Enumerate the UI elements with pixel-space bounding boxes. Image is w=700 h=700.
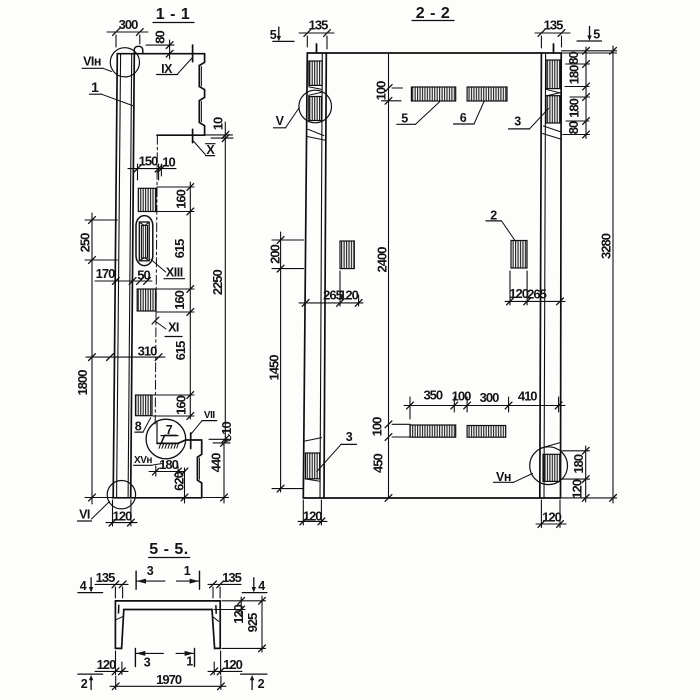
svg-text:4: 4 (258, 579, 265, 593)
svg-text:5: 5 (270, 28, 277, 42)
svg-text:3: 3 (346, 430, 353, 444)
svg-text:2400: 2400 (375, 247, 390, 273)
svg-text:120: 120 (542, 510, 561, 525)
svg-text:5 - 5.: 5 - 5. (149, 541, 188, 558)
svg-text:1970: 1970 (156, 672, 182, 687)
svg-text:180: 180 (567, 65, 582, 84)
svg-text:250: 250 (78, 233, 93, 252)
svg-text:170: 170 (96, 266, 115, 281)
svg-text:925: 925 (245, 613, 260, 632)
svg-text:100: 100 (374, 81, 389, 100)
svg-text:5: 5 (401, 112, 408, 126)
svg-text:120: 120 (97, 657, 116, 672)
svg-text:6: 6 (460, 111, 467, 125)
svg-text:XI: XI (168, 321, 179, 335)
svg-text:300: 300 (480, 390, 499, 405)
svg-text:3: 3 (144, 656, 151, 670)
svg-text:2250: 2250 (210, 269, 225, 295)
svg-text:265: 265 (527, 287, 546, 302)
svg-text:120: 120 (231, 604, 246, 623)
svg-text:VI: VI (79, 508, 90, 522)
svg-text:5: 5 (593, 28, 600, 42)
svg-text:440: 440 (209, 453, 224, 472)
svg-text:3280: 3280 (599, 233, 614, 259)
svg-text:3: 3 (147, 564, 154, 578)
svg-text:80: 80 (566, 121, 581, 134)
svg-text:XIII: XIII (166, 266, 183, 280)
svg-text:2: 2 (81, 677, 88, 691)
svg-text:135: 135 (222, 570, 241, 585)
svg-text:10: 10 (219, 422, 234, 435)
svg-text:180: 180 (571, 454, 586, 473)
svg-text:300: 300 (119, 17, 138, 32)
svg-text:1450: 1450 (267, 355, 282, 381)
svg-text:160: 160 (172, 290, 187, 309)
svg-text:1: 1 (91, 79, 99, 95)
svg-text:120: 120 (113, 509, 132, 524)
svg-text:120: 120 (303, 509, 322, 524)
svg-text:1: 1 (186, 655, 193, 669)
svg-text:200: 200 (268, 244, 283, 263)
svg-text:410: 410 (518, 389, 537, 404)
svg-text:8: 8 (135, 420, 142, 434)
svg-text:1: 1 (184, 564, 191, 578)
svg-text:135: 135 (96, 570, 115, 585)
svg-text:120: 120 (570, 479, 585, 498)
svg-text:4: 4 (80, 579, 87, 593)
svg-text:50: 50 (137, 268, 150, 283)
svg-text:120: 120 (339, 288, 358, 303)
svg-text:2: 2 (258, 677, 265, 691)
svg-text:10: 10 (162, 155, 175, 170)
svg-text:80: 80 (566, 52, 581, 65)
svg-text:100: 100 (452, 389, 471, 404)
svg-text:620: 620 (172, 471, 187, 490)
svg-text:160: 160 (174, 395, 189, 414)
svg-text:180: 180 (159, 457, 178, 472)
svg-text:350: 350 (423, 388, 442, 403)
svg-text:120: 120 (509, 286, 528, 301)
svg-text:615: 615 (172, 239, 187, 258)
svg-text:1800: 1800 (75, 370, 90, 396)
svg-text:80: 80 (153, 31, 168, 44)
svg-text:100: 100 (370, 417, 385, 436)
svg-text:135: 135 (309, 18, 328, 33)
svg-text:450: 450 (371, 453, 386, 472)
svg-text:150: 150 (139, 154, 158, 169)
svg-text:VIн: VIн (83, 55, 101, 69)
svg-text:X: X (206, 143, 215, 157)
svg-text:VII: VII (204, 410, 215, 421)
svg-text:160: 160 (174, 189, 189, 208)
svg-text:135: 135 (544, 18, 563, 33)
svg-text:XVн: XVн (134, 455, 152, 466)
svg-text:310: 310 (138, 344, 157, 359)
svg-text:2 - 2: 2 - 2 (416, 5, 451, 22)
svg-text:180: 180 (567, 98, 582, 117)
svg-text:10: 10 (211, 117, 226, 130)
svg-text:V: V (276, 114, 285, 128)
svg-text:615: 615 (173, 341, 188, 360)
svg-text:120: 120 (223, 657, 242, 672)
svg-text:1 - 1: 1 - 1 (156, 6, 191, 23)
svg-text:3: 3 (514, 115, 521, 129)
